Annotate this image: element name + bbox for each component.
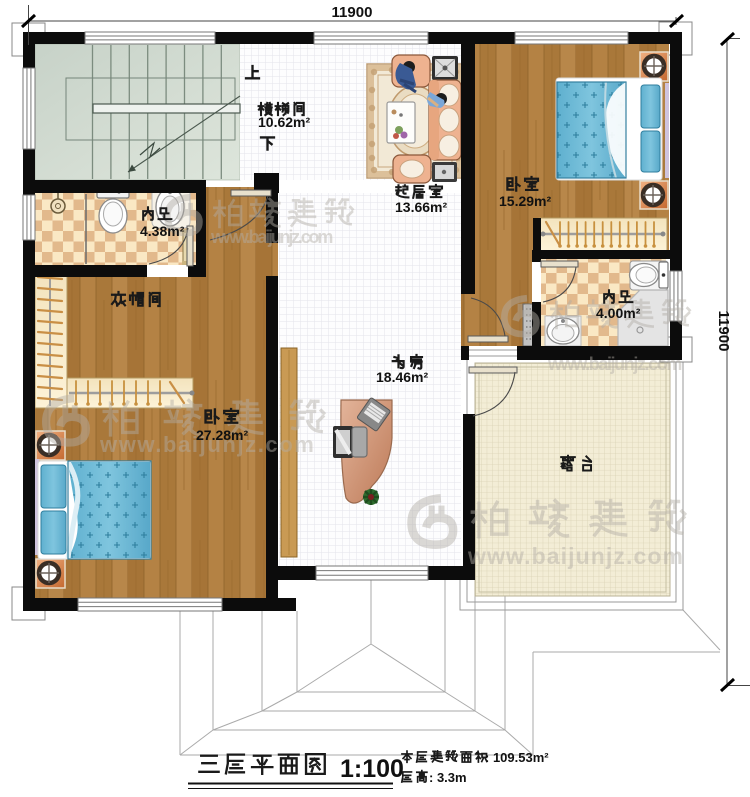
svg-text:: 3.3m: : 3.3m bbox=[429, 770, 467, 785]
svg-text:4.38m²: 4.38m² bbox=[140, 223, 185, 239]
svg-text:11900: 11900 bbox=[332, 4, 373, 21]
svg-text:www.baijunjz.com: www.baijunjz.com bbox=[467, 543, 684, 569]
svg-text:10.62m²: 10.62m² bbox=[258, 114, 310, 130]
svg-text:www.baijunjz.com: www.baijunjz.com bbox=[547, 354, 681, 374]
svg-text:27.28m²: 27.28m² bbox=[196, 427, 248, 443]
svg-text:11900: 11900 bbox=[715, 311, 732, 352]
svg-text:www.baijunjz.com: www.baijunjz.com bbox=[210, 227, 332, 247]
svg-text:13.66m²: 13.66m² bbox=[395, 199, 447, 215]
svg-text:15.29m²: 15.29m² bbox=[499, 193, 551, 209]
svg-text:4.00m²: 4.00m² bbox=[596, 305, 641, 321]
svg-text:1:100: 1:100 bbox=[340, 755, 404, 783]
svg-text:18.46m²: 18.46m² bbox=[376, 369, 428, 385]
svg-text:: 109.53m²: : 109.53m² bbox=[485, 750, 549, 765]
